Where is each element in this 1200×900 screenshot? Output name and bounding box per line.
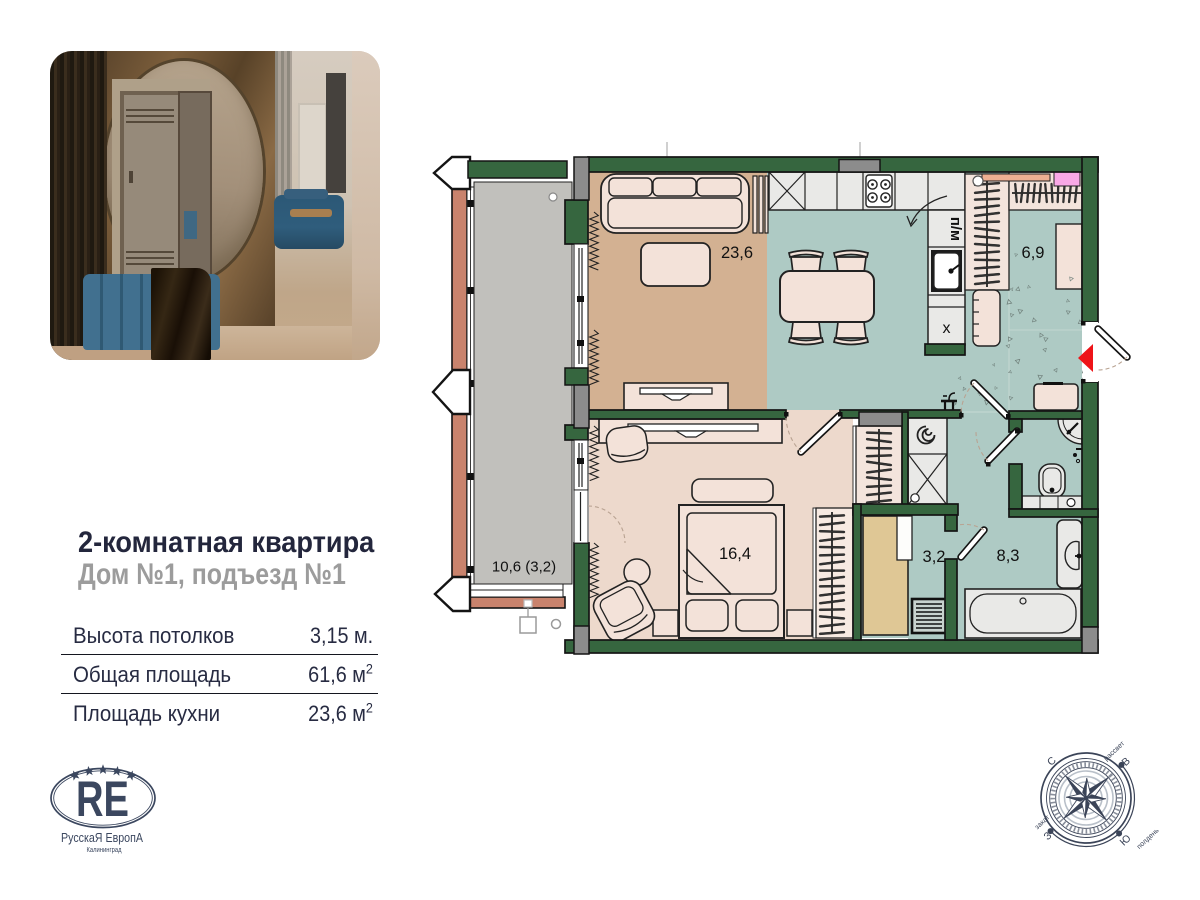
svg-text:10,6 (3,2): 10,6 (3,2) [492, 559, 556, 576]
svg-text:16,4: 16,4 [719, 545, 751, 563]
svg-text:23,6: 23,6 [721, 244, 753, 262]
svg-text:С: С [1045, 754, 1059, 768]
svg-text:х: х [943, 320, 951, 337]
svg-text:3,2: 3,2 [923, 548, 946, 566]
svg-text:п/м: п/м [947, 217, 964, 241]
svg-text:Калининград: Калининград [87, 847, 122, 854]
svg-text:8,3: 8,3 [997, 547, 1020, 565]
svg-text:RE: RE [76, 771, 129, 827]
svg-text:РусскаЯ ЕвропА: РусскаЯ ЕвропА [61, 831, 144, 845]
svg-text:6,9: 6,9 [1022, 244, 1045, 262]
svg-text:полдень: полдень [1136, 827, 1161, 851]
